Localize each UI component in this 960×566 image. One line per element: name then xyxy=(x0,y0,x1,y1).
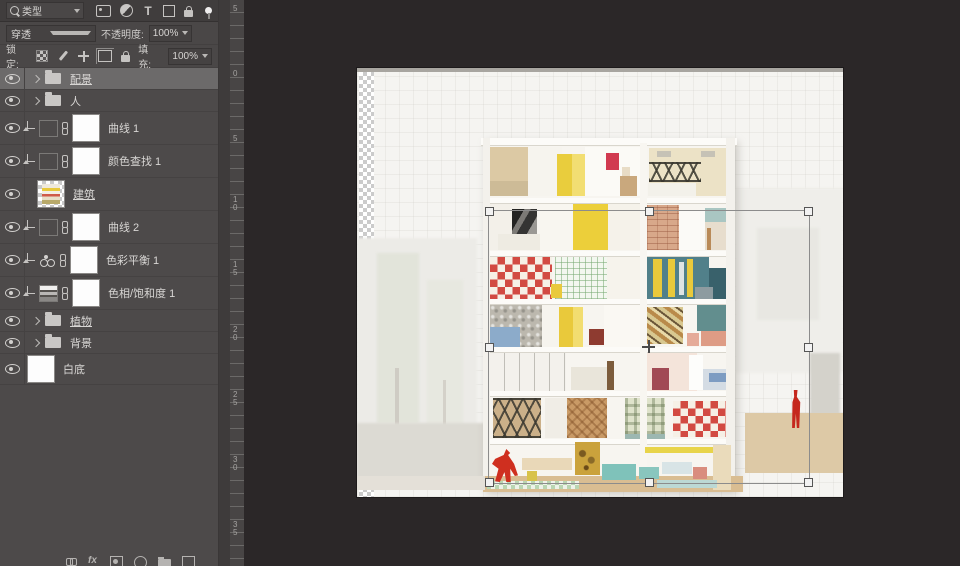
clipping-mask-arrow-icon xyxy=(27,121,35,129)
floor-slab xyxy=(481,138,737,145)
clipping-mask-arrow-icon xyxy=(27,253,35,261)
opacity-label: 不透明度: xyxy=(101,26,144,41)
new-group-icon[interactable] xyxy=(158,559,171,566)
visibility-toggle[interactable] xyxy=(0,90,25,111)
visibility-toggle[interactable] xyxy=(0,244,25,276)
photoshop-window: { "panel": { "filter": { "kind_label": "… xyxy=(0,0,960,566)
layer-name[interactable]: 建筑 xyxy=(73,186,95,202)
folder-icon xyxy=(45,337,61,348)
document-canvas[interactable] xyxy=(357,68,843,497)
chevron-down-icon xyxy=(182,31,188,35)
layer-row-colorbalance-1[interactable]: 色彩平衡 1 xyxy=(0,244,218,277)
folder-icon xyxy=(45,315,61,326)
folder-icon xyxy=(45,95,61,106)
group-expand-chevron-icon[interactable] xyxy=(32,96,40,104)
layer-row-curves-1[interactable]: 曲线 1 xyxy=(0,112,218,145)
fill-value: 100% xyxy=(172,51,198,62)
ruler-label: 10 xyxy=(233,196,241,212)
floor-slab xyxy=(483,198,735,203)
layer-fill-thumbnail[interactable] xyxy=(27,355,55,383)
layer-filter-kind-select[interactable]: 类型 xyxy=(6,2,84,19)
layer-row-huesaturation-1[interactable]: 色相/饱和度 1 xyxy=(0,277,218,310)
delete-layer-icon[interactable] xyxy=(182,556,195,566)
fill-field[interactable]: 100% xyxy=(168,48,212,65)
ruler-label: 5 xyxy=(233,5,241,13)
canvas-area[interactable] xyxy=(244,0,960,566)
fill-label: 填充: xyxy=(138,41,160,71)
ruler-label: 15 xyxy=(233,261,241,277)
room-yellow-cabinet xyxy=(572,154,585,196)
ruler-label: 35 xyxy=(233,521,241,537)
layer-name[interactable]: 白底 xyxy=(63,361,85,377)
layer-name[interactable]: 配景 xyxy=(70,71,92,87)
adjustment-filter-icon[interactable] xyxy=(120,4,133,17)
visibility-toggle[interactable] xyxy=(0,112,25,144)
shape-filter-icon[interactable] xyxy=(163,5,175,17)
eye-icon xyxy=(5,364,20,374)
layer-mask-thumbnail[interactable] xyxy=(72,213,100,241)
mask-link-chain-icon[interactable] xyxy=(62,155,68,168)
eye-icon xyxy=(5,222,20,232)
eye-icon xyxy=(5,255,20,265)
transform-handle-bottom-right[interactable] xyxy=(804,478,813,487)
dresser xyxy=(620,176,637,196)
eye-icon xyxy=(5,74,20,84)
ruler-label: 0 xyxy=(233,70,241,78)
opacity-value: 100% xyxy=(153,28,179,39)
room-yellow-cabinet xyxy=(557,154,572,196)
adjustment-layer-icon[interactable] xyxy=(39,253,56,268)
filter-toggle-pin-icon[interactable] xyxy=(205,7,212,14)
transform-handle-middle-left[interactable] xyxy=(485,343,494,352)
type-filter-icon[interactable]: T xyxy=(142,5,154,17)
layer-filter-bar: 类型 T xyxy=(0,0,218,22)
lock-artboard-icon[interactable] xyxy=(98,50,112,62)
layer-row-colorlookup-1[interactable]: 颜色查找 1 xyxy=(0,145,218,178)
group-expand-chevron-icon[interactable] xyxy=(32,74,40,82)
lock-bar: 锁定: 填充: 100% xyxy=(0,45,218,68)
new-adjustment-icon[interactable] xyxy=(134,556,147,566)
blend-mode-select[interactable]: 穿透 xyxy=(6,25,96,42)
lock-transparent-icon[interactable] xyxy=(36,50,48,62)
visibility-toggle[interactable] xyxy=(0,310,25,331)
layer-row-baidi[interactable]: 白底 xyxy=(0,354,218,385)
visibility-toggle[interactable] xyxy=(0,68,25,89)
layer-row-ren-group[interactable]: 人 xyxy=(0,90,218,112)
adjustment-layer-icon[interactable] xyxy=(39,153,58,170)
folder-icon xyxy=(45,73,61,84)
layer-row-peijing-group[interactable]: 配景 xyxy=(0,68,218,90)
blend-mode-value: 穿透 xyxy=(11,26,46,41)
eye-icon xyxy=(5,288,20,298)
adjustment-layer-icon[interactable] xyxy=(39,120,58,137)
lock-paint-icon[interactable] xyxy=(57,50,69,62)
group-expand-chevron-icon[interactable] xyxy=(32,316,40,324)
visibility-toggle[interactable] xyxy=(0,354,25,384)
link-layers-icon[interactable] xyxy=(66,556,77,566)
visibility-toggle[interactable] xyxy=(0,145,25,177)
vertical-ruler[interactable]: 505101520253035 xyxy=(230,0,245,566)
layer-effects-icon[interactable]: fx xyxy=(88,556,99,566)
opacity-field[interactable]: 100% xyxy=(149,25,193,42)
chevron-down-icon xyxy=(202,54,208,58)
transform-handle-top-middle[interactable] xyxy=(645,207,654,216)
layer-mask-thumbnail[interactable] xyxy=(72,279,100,307)
layer-name[interactable]: 曲线 1 xyxy=(108,120,139,136)
adjustment-layer-icon[interactable] xyxy=(39,285,58,302)
layers-panel: 类型 T 穿透 不透明度: 100% 锁定: 填充: 100% xyxy=(0,0,219,566)
group-expand-chevron-icon[interactable] xyxy=(32,338,40,346)
chevron-down-icon xyxy=(50,31,91,35)
steel-truss xyxy=(649,162,701,182)
layer-row-jianzhu[interactable]: 建筑 xyxy=(0,178,218,211)
ruler-label: 20 xyxy=(233,326,241,342)
bg-ground-left xyxy=(357,423,485,479)
chevron-down-icon xyxy=(74,9,80,13)
ruler-label: 5 xyxy=(233,135,241,143)
layers-list: 配景 人 xyxy=(0,68,218,385)
filter-kind-label: 类型 xyxy=(22,3,71,18)
mask-link-chain-icon[interactable] xyxy=(62,287,68,300)
layer-name[interactable]: 色彩平衡 1 xyxy=(106,252,159,268)
ruler-label: 30 xyxy=(233,456,241,472)
clipping-mask-arrow-icon xyxy=(27,154,35,162)
layer-image-thumbnail[interactable] xyxy=(37,180,65,208)
ruler-label: 25 xyxy=(233,391,241,407)
mask-link-chain-icon[interactable] xyxy=(60,254,66,267)
clipping-mask-arrow-icon xyxy=(27,286,35,294)
clipping-mask-arrow-icon xyxy=(27,220,35,228)
adjustment-layer-icon[interactable] xyxy=(39,219,58,236)
ground-ledge xyxy=(357,476,485,490)
lock-all-icon[interactable] xyxy=(121,55,130,62)
blend-mode-bar: 穿透 不透明度: 100% xyxy=(0,22,218,45)
layer-row-zhiwu-group[interactable]: 植物 xyxy=(0,310,218,332)
smartobject-filter-icon[interactable] xyxy=(184,10,193,17)
layer-mask-thumbnail[interactable] xyxy=(72,147,100,175)
layer-name[interactable]: 曲线 2 xyxy=(108,219,139,235)
transform-reference-point-icon[interactable] xyxy=(642,340,655,353)
lock-icon-group xyxy=(36,50,130,62)
lock-label: 锁定: xyxy=(6,41,28,71)
mask-link-chain-icon[interactable] xyxy=(62,122,68,135)
layer-mask-thumbnail[interactable] xyxy=(70,246,98,274)
lock-move-icon[interactable] xyxy=(78,51,89,62)
layer-row-curves-2[interactable]: 曲线 2 xyxy=(0,211,218,244)
transform-handle-middle-right[interactable] xyxy=(804,343,813,352)
transform-box[interactable] xyxy=(488,210,810,484)
layer-name[interactable]: 植物 xyxy=(70,313,92,329)
add-mask-icon[interactable] xyxy=(110,556,123,566)
eye-icon xyxy=(5,189,20,199)
eye-icon xyxy=(5,156,20,166)
mask-link-chain-icon[interactable] xyxy=(62,221,68,234)
layer-name[interactable]: 背景 xyxy=(70,335,92,351)
visibility-toggle[interactable] xyxy=(0,277,25,309)
layer-name[interactable]: 色相/饱和度 1 xyxy=(108,285,175,301)
eye-icon xyxy=(5,96,20,106)
visibility-toggle[interactable] xyxy=(0,211,25,243)
transform-handle-top-left[interactable] xyxy=(485,207,494,216)
eye-icon xyxy=(5,316,20,326)
layer-name[interactable]: 颜色查找 1 xyxy=(108,153,161,169)
visibility-toggle[interactable] xyxy=(0,178,25,210)
transform-handle-bottom-middle[interactable] xyxy=(645,478,654,487)
vent xyxy=(701,151,715,157)
deer-head xyxy=(606,153,619,170)
filter-icon-group: T xyxy=(96,4,201,17)
layer-name[interactable]: 人 xyxy=(70,93,81,109)
layer-row-beijing-group[interactable]: 背景 xyxy=(0,332,218,354)
eye-icon xyxy=(5,338,20,348)
layer-mask-thumbnail[interactable] xyxy=(72,114,100,142)
transform-handle-top-right[interactable] xyxy=(804,207,813,216)
visibility-toggle[interactable] xyxy=(0,332,25,353)
search-icon xyxy=(10,6,19,15)
room-bed xyxy=(648,183,696,196)
vent xyxy=(657,151,671,157)
panel-gap-strip xyxy=(219,0,230,566)
pixel-filter-icon[interactable] xyxy=(96,5,111,17)
eye-icon xyxy=(5,123,20,133)
transform-handle-bottom-left[interactable] xyxy=(485,478,494,487)
